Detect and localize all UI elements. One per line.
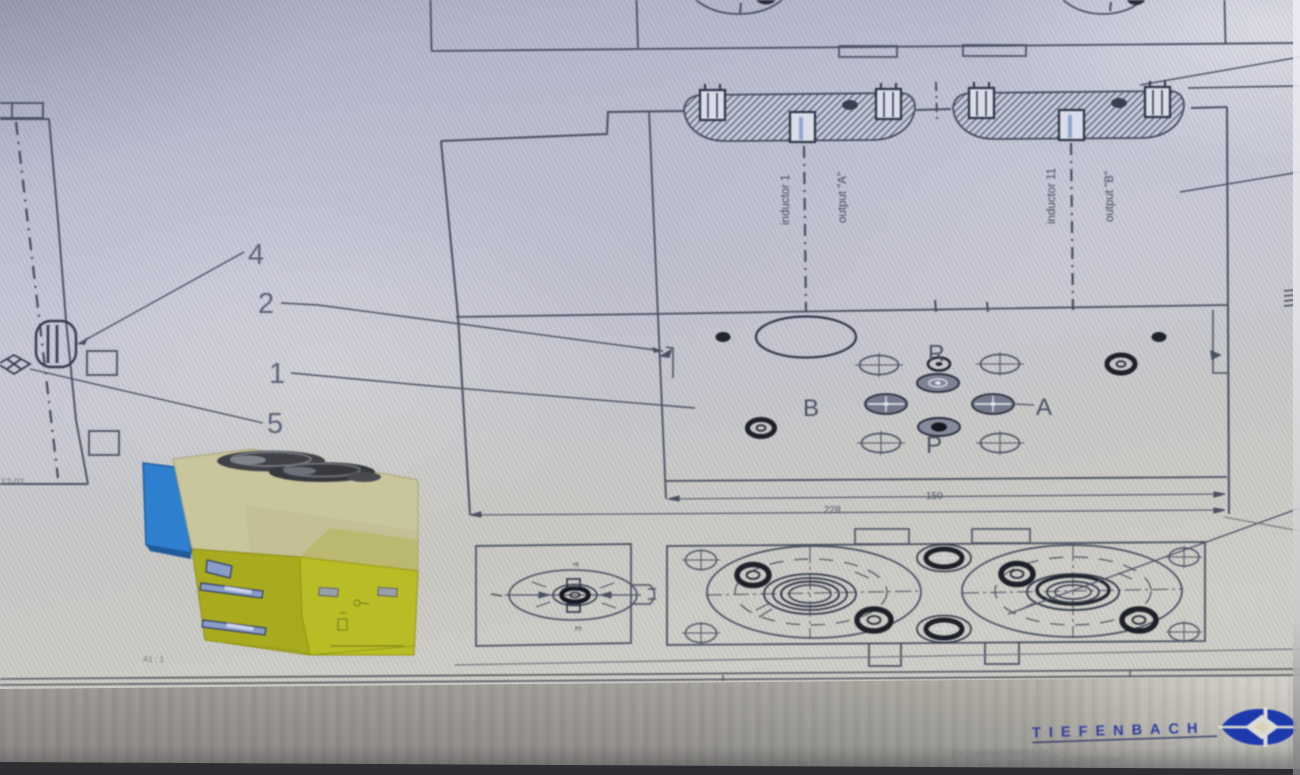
- svg-text:1: 1: [269, 358, 285, 390]
- svg-text:P: P: [926, 432, 942, 459]
- svg-text:inductor 11: inductor 11: [1046, 168, 1058, 224]
- svg-text:3: 3: [573, 626, 583, 631]
- svg-text:inductor 1: inductor 1: [780, 174, 792, 225]
- svg-text:4: 4: [248, 239, 264, 271]
- svg-text:output "B": output "B": [1104, 171, 1116, 222]
- svg-text:2: 2: [258, 288, 274, 320]
- svg-text:A: A: [1036, 394, 1052, 421]
- svg-text:12-02: 12-02: [1, 477, 24, 487]
- svg-text:5: 5: [267, 408, 283, 440]
- svg-text:B: B: [803, 395, 819, 422]
- svg-text:output "A": output "A": [837, 172, 849, 223]
- svg-text:TIEFENBACH: TIEFENBACH: [1032, 721, 1206, 742]
- svg-text:150: 150: [926, 491, 943, 502]
- svg-text:228: 228: [824, 505, 841, 516]
- svg-text:R: R: [928, 340, 945, 366]
- svg-text:4: 4: [571, 562, 581, 567]
- svg-text:A1 : 1: A1 : 1: [143, 655, 164, 664]
